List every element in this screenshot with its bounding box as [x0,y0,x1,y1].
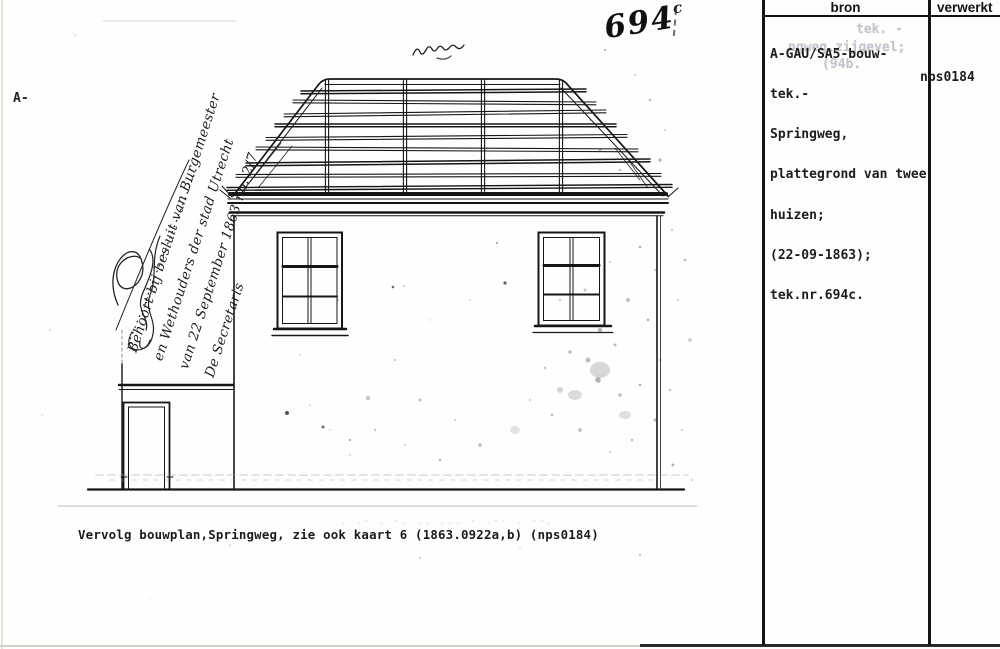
source-entry-line: (22-09-1863); [770,249,927,262]
source-entry-line: Springweg, [770,128,927,141]
verwerkt-value: nps0184 [920,70,975,85]
facade-walls [234,216,661,490]
source-entry-line: huizen; [770,209,927,222]
roof-posts [325,80,562,195]
source-entry: A-GAU/SA5-bouw- tek.- Springweg, platteg… [770,21,927,329]
door [121,403,173,490]
ground-line [58,490,697,507]
source-entry-line: tek.- [770,88,927,101]
right-window [533,233,613,333]
source-entry-line: tek.nr.694c. [770,289,927,302]
scanned-card: A- 694c Behoort bij besluit van Burgemee… [0,0,1000,649]
source-entry-line: plattegrond van twee [770,168,927,181]
bleedthrough-smudge [96,475,688,480]
left-window [272,233,348,336]
source-entry-line: A-GAU/SA5-bouw- [770,48,927,61]
roof-scribble [413,45,464,59]
